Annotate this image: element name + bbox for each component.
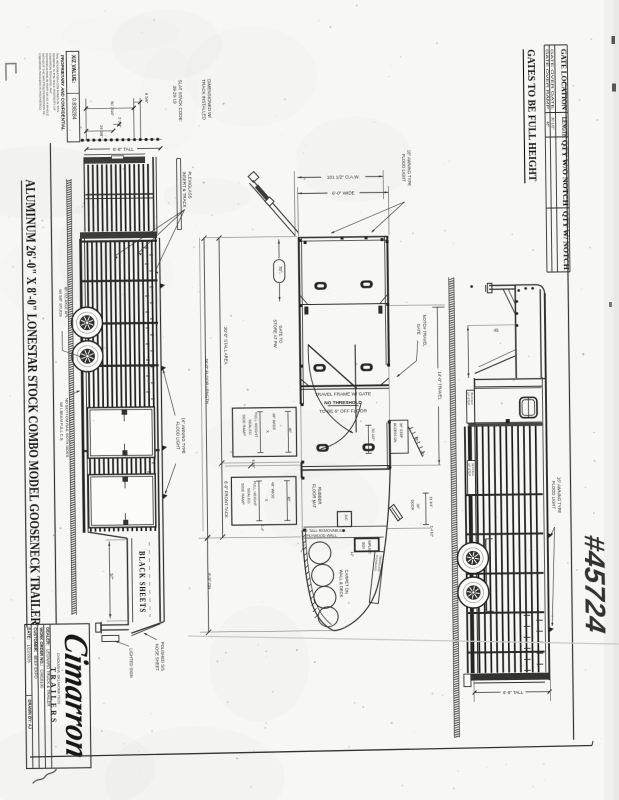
- svg-text:CIM18100: CIM18100: [39, 669, 44, 689]
- svg-text:20'-0" STALL AREA: 20'-0" STALL AREA: [223, 327, 228, 365]
- svg-text:46": 46": [546, 121, 551, 128]
- svg-text:GATE OVER RAMP: GATE OVER RAMP: [545, 49, 551, 110]
- svg-text:POLISHED S/S: POLISHED S/S: [160, 642, 165, 671]
- svg-text:6'-0" FRONT TACK: 6'-0" FRONT TACK: [224, 481, 229, 518]
- svg-text:36": 36": [416, 504, 420, 510]
- svg-text:36": 36": [414, 437, 418, 443]
- svg-text:2 3/4": 2 3/4": [118, 117, 123, 128]
- svg-text:UP STEP: UP STEP: [466, 392, 470, 405]
- svg-text:#45724: #45724: [578, 533, 611, 636]
- svg-text:NOSE SHEET: NOSE SHEET: [154, 644, 159, 671]
- svg-text:BLACK SHEETS: BLACK SHEETS: [137, 551, 147, 613]
- svg-text:DEALER:: DEALER:: [45, 627, 50, 645]
- svg-text:12": 12": [420, 451, 424, 457]
- svg-text:BOX: BOX: [361, 542, 365, 550]
- svg-text:NO THRESHOLD: NO THRESHOLD: [324, 400, 362, 405]
- svg-text:DATE:: DATE:: [26, 627, 31, 639]
- svg-text:NOTCH TRAVEL: NOTCH TRAVEL: [422, 315, 427, 348]
- svg-text:LIGHTED SIGN: LIGHTED SIGN: [128, 648, 133, 678]
- svg-text:CUSTOMER:: CUSTOMER:: [33, 627, 38, 652]
- svg-text:50 7/16": 50 7/16": [110, 101, 115, 116]
- svg-text:57": 57": [109, 573, 114, 580]
- svg-text:STORE AT PW: STORE AT PW: [272, 319, 277, 347]
- svg-text:DRAWN BY: AJ: DRAWN BY: AJ: [27, 699, 32, 729]
- svg-text:ACCESS GN: ACCESS GN: [393, 423, 397, 443]
- svg-text:45: 45: [494, 328, 500, 333]
- svg-text:1'-4 1/2": 1'-4 1/2": [430, 525, 434, 537]
- svg-text:GATE TO: GATE TO: [278, 325, 283, 344]
- svg-text:X/Z VALUE:: X/Z VALUE:: [70, 55, 76, 84]
- svg-text:14'-0" TRAVEL: 14'-0" TRAVEL: [437, 371, 442, 400]
- svg-text:1'-4": 1'-4": [260, 525, 264, 532]
- svg-text:DOOR: DOOR: [410, 500, 414, 511]
- svg-text:36" STEP: 36" STEP: [399, 423, 403, 439]
- svg-text:26'-0" FLOOR LENGTH: 26'-0" FLOOR LENGTH: [204, 358, 210, 404]
- svg-text:TO BE 6" OFF FLOOR: TO BE 6" OFF FLOOR: [319, 408, 367, 414]
- svg-text:FULL HEIGHT: FULL HEIGHT: [252, 481, 257, 507]
- svg-text:BEEF EXPO: BEEF EXPO: [33, 655, 38, 678]
- svg-text:6'-8" TALL: 6'-8" TALL: [113, 147, 134, 152]
- svg-text:WALL & DECK: WALL & DECK: [338, 570, 343, 598]
- svg-text:FLOOD LIGHT: FLOOD LIGHT: [175, 422, 180, 450]
- svg-text:CHICKASHA, OKLAHOMA 73023: CHICKASHA, OKLAHOMA 73023: [56, 653, 61, 704]
- svg-text:GATES TO BE FULL HEIGHT: GATES TO BE FULL HEIGHT: [525, 49, 539, 182]
- svg-text:W/ I-BEAM FULL C.S.: W/ I-BEAM FULL C.S.: [59, 402, 64, 441]
- svg-text:26 3/8": 26 3/8": [99, 125, 104, 138]
- svg-text:TRAVEL FRAME W/ GATE: TRAVEL FRAME W/ GATE: [315, 391, 371, 397]
- svg-text:GATE: GATE: [416, 324, 421, 335]
- svg-text:CARPET ON: CARPET ON: [344, 570, 349, 594]
- svg-text:70°: 70°: [278, 266, 283, 273]
- svg-text:SEALED: SEALED: [247, 488, 252, 504]
- svg-text:FLOOD LIGHT: FLOOD LIGHT: [551, 481, 556, 509]
- svg-text:UP STEP: UP STEP: [467, 463, 471, 476]
- svg-text:0.838284: 0.838284: [70, 98, 76, 120]
- svg-text:6'-8" TALL: 6'-8" TALL: [503, 690, 524, 695]
- svg-text:12": 12": [350, 551, 354, 557]
- svg-text:IMPLANT: IMPLANT: [367, 540, 371, 554]
- svg-text:30 1/2": 30 1/2": [371, 428, 376, 441]
- svg-text:SIDE RAMP: SIDE RAMP: [241, 483, 246, 505]
- svg-text:CIMARRON TRAILERS IS PROHIBITE: CIMARRON TRAILERS IS PROHIBITED.: [38, 53, 43, 110]
- svg-text:1/22/2026: 1/22/2026: [27, 644, 32, 663]
- svg-text:31 3/4": 31 3/4": [429, 497, 433, 509]
- svg-text:WORK ORDER NO.:: WORK ORDER NO.:: [39, 627, 44, 666]
- svg-text:8'-9" GN: 8'-9" GN: [207, 573, 212, 589]
